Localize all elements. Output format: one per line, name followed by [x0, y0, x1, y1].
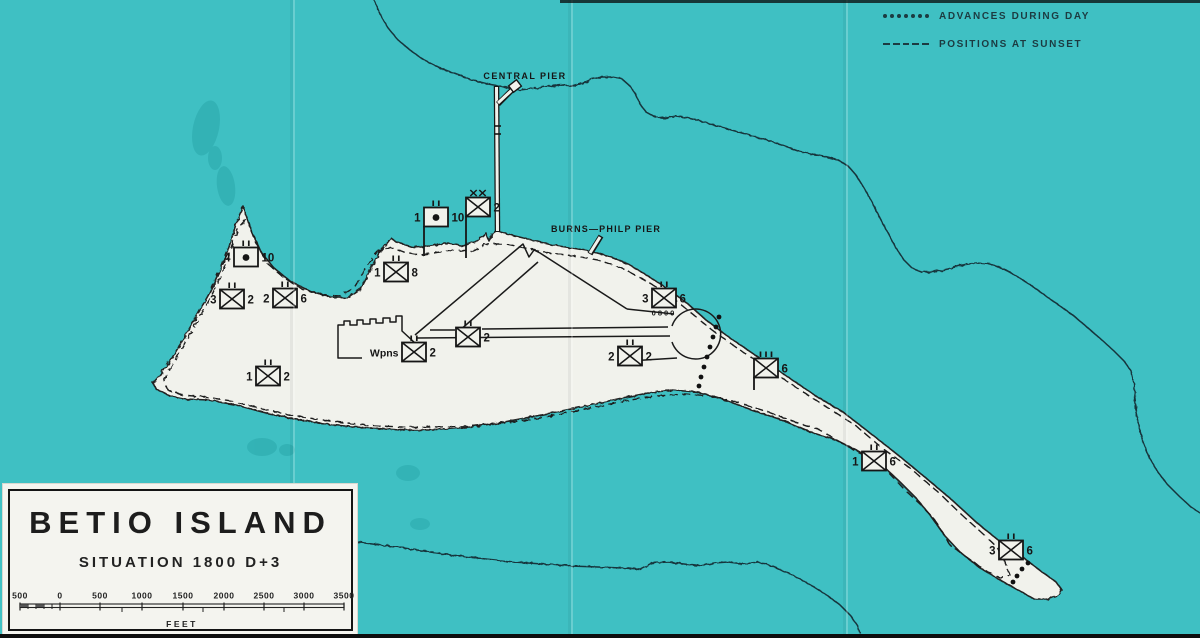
unit-label: 2: [484, 333, 490, 345]
unit-label: 1: [414, 213, 421, 225]
unit-label: 2: [608, 352, 614, 364]
unit-label: 8: [412, 268, 419, 280]
photo-edge-bottom: [0, 634, 1200, 638]
scale-tick-label: 2000: [214, 591, 235, 601]
dashed-line-icon: [883, 43, 929, 45]
legend: ADVANCES DURING DAY POSITIONS AT SUNSET: [883, 8, 1090, 64]
paper-crease: [843, 0, 846, 638]
unit-label: 2: [430, 348, 436, 360]
scale-tick-label: 1500: [173, 591, 194, 601]
unit-label: 6: [301, 294, 307, 306]
unit-label: 10: [262, 253, 275, 265]
unit-label: 3: [989, 546, 995, 558]
scale-tick-label: 500: [92, 591, 108, 601]
unit-label: 2: [284, 372, 290, 384]
unit-label: 1: [246, 372, 253, 384]
legend-positions-row: POSITIONS AT SUNSET: [883, 36, 1090, 52]
scale-unit-label: FEET: [166, 619, 198, 629]
legend-positions-label: POSITIONS AT SUNSET: [939, 39, 1082, 50]
unit-label: 3: [210, 295, 216, 307]
unit-label: 6: [782, 364, 788, 376]
scale-tick-label: 0: [57, 591, 62, 601]
photo-edge-top: [560, 0, 1200, 3]
map-sheet: 1102410322618Wpns22360800226163612 CENTR…: [0, 0, 1200, 638]
unit-label: 2: [263, 294, 269, 306]
title-block: BETIO ISLAND SITUATION 1800 D+3 50005001…: [2, 483, 358, 636]
unit-label: 6: [680, 294, 686, 306]
unit-label: 4: [224, 253, 231, 265]
unit-label: 2: [248, 295, 254, 307]
scale-tick-label: 3500: [334, 591, 355, 601]
scale-tick-label: 500: [12, 591, 28, 601]
central-pier-label: CENTRAL PIER: [483, 71, 566, 81]
scale-tick-label: 2500: [254, 591, 275, 601]
unit-label: 6: [1027, 546, 1033, 558]
paper-crease: [568, 0, 571, 638]
unit-label: 0800: [652, 309, 677, 318]
map-title: BETIO ISLAND: [10, 505, 351, 541]
legend-advances-label: ADVANCES DURING DAY: [939, 11, 1090, 22]
unit-label: 10: [452, 213, 465, 225]
scale-tick-label: 3000: [294, 591, 315, 601]
unit-label: 1: [852, 457, 859, 469]
dotted-line-icon: [883, 14, 929, 18]
unit-label: 6: [890, 457, 896, 469]
unit-label: 2: [494, 203, 500, 215]
unit-label: 2: [646, 352, 652, 364]
unit-label: 1: [374, 268, 381, 280]
unit-label: 3: [642, 294, 648, 306]
scale-bar: 5000500100015002000250030003500 FEET: [2, 588, 358, 634]
scale-tick-label: 1000: [132, 591, 153, 601]
map-subtitle: SITUATION 1800 D+3: [10, 554, 351, 571]
unit-label: Wpns: [370, 348, 399, 360]
legend-advances-row: ADVANCES DURING DAY: [883, 8, 1090, 24]
